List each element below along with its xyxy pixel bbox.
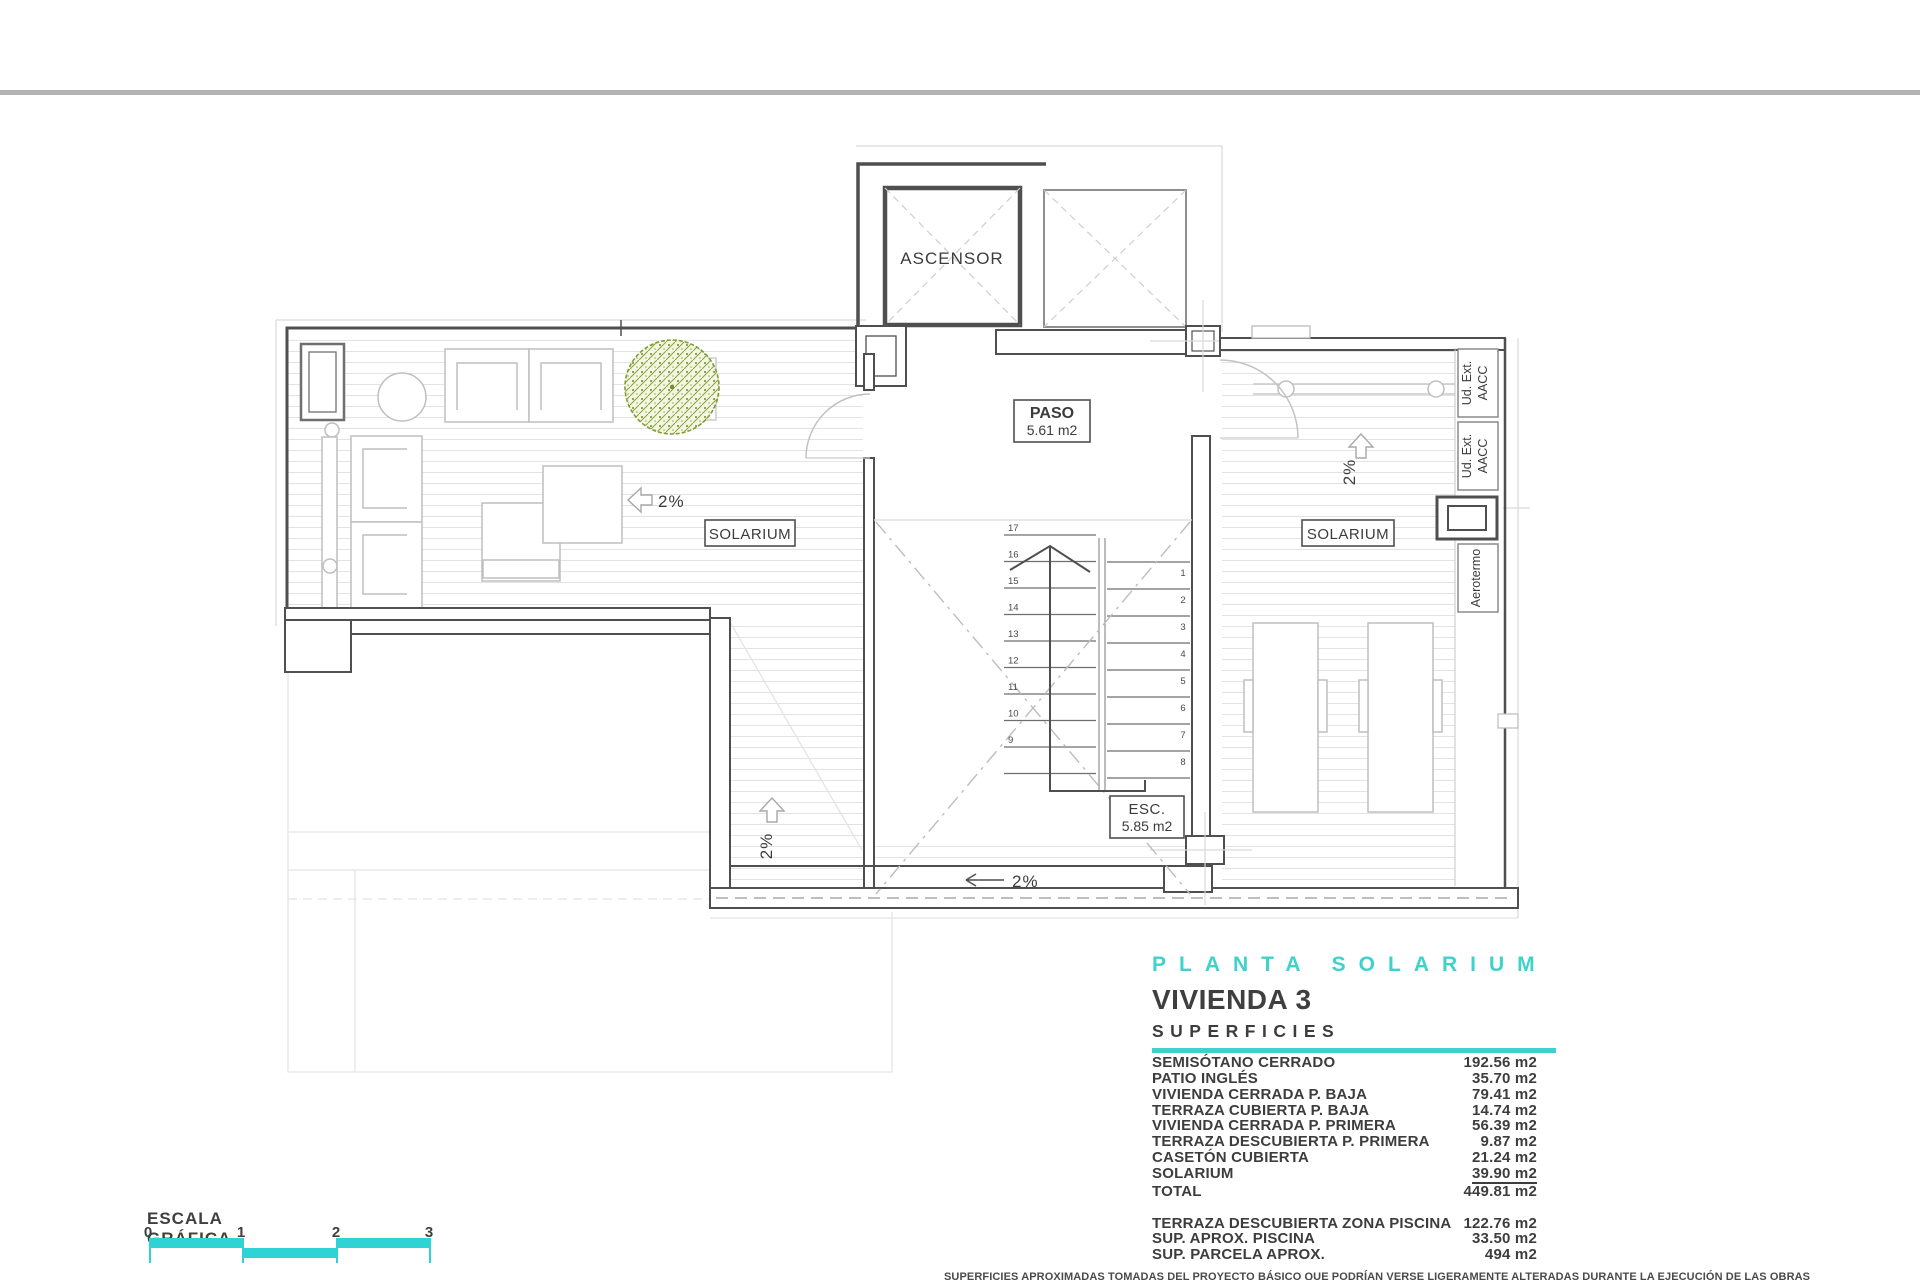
- surface-value: 21.24 m2: [1472, 1150, 1537, 1166]
- esc-area-label: 5.85 m2: [1122, 818, 1173, 834]
- handrail-post: [1428, 381, 1444, 397]
- scale-segment: [337, 1238, 430, 1248]
- surface-label: TERRAZA CUBIERTA P. BAJA: [1152, 1103, 1369, 1119]
- slope-bottom-label: 2%: [1012, 872, 1039, 891]
- surfaces-table: SEMISÓTANO CERRADO192.56 m2PATIO INGLÉS3…: [1152, 1055, 1537, 1200]
- aacc-unit-label: Ud. Ext.: [1460, 361, 1474, 405]
- slope-arrow-bottom-icon: [966, 874, 1004, 886]
- surface-label: VIVIENDA CERRADA P. PRIMERA: [1152, 1118, 1396, 1134]
- surface-row: TERRAZA DESCUBIERTA ZONA PISCINA122.76 m…: [1152, 1216, 1537, 1232]
- scale-segment: [243, 1248, 337, 1258]
- surface-label: TERRAZA DESCUBIERTA ZONA PISCINA: [1152, 1216, 1451, 1232]
- surface-label: CASETÓN CUBIERTA: [1152, 1150, 1309, 1166]
- svg-text:7: 7: [1180, 730, 1185, 741]
- surface-value: 35.70 m2: [1472, 1071, 1537, 1087]
- surface-row: SUP. APROX. PISCINA33.50 m2: [1152, 1231, 1537, 1247]
- surface-row: SOLARIUM39.90 m2: [1152, 1166, 1537, 1184]
- plan-title: PLANTA SOLARIUM: [1152, 953, 1556, 977]
- surface-row: VIVIENDA CERRADA P. PRIMERA56.39 m2: [1152, 1118, 1537, 1134]
- slope-right-label: 2%: [1340, 459, 1359, 486]
- surface-label: SUP. PARCELA APROX.: [1152, 1247, 1325, 1263]
- surface-value: 14.74 m2: [1472, 1103, 1537, 1119]
- aerotermo-unit: [1437, 497, 1497, 539]
- paso-area-label: 5.61 m2: [1027, 422, 1078, 438]
- svg-text:8: 8: [1180, 757, 1185, 768]
- surface-value: 79.41 m2: [1472, 1087, 1537, 1103]
- svg-text:4: 4: [1180, 649, 1185, 660]
- accent-rule: [1152, 1048, 1556, 1053]
- stair-treads-right: [1107, 562, 1190, 778]
- svg-text:12: 12: [1008, 656, 1019, 667]
- svg-text:17: 17: [1008, 523, 1019, 534]
- surface-value: 33.50 m2: [1472, 1231, 1537, 1247]
- surface-label: SEMISÓTANO CERRADO: [1152, 1055, 1335, 1071]
- slope-mid-label: 2%: [757, 833, 776, 860]
- side-rail: [322, 437, 337, 608]
- scale-segment: [150, 1238, 243, 1248]
- slope-left-label: 2%: [658, 492, 685, 511]
- stair-step-numbers-right: 12345678: [1180, 568, 1185, 768]
- title-block: PLANTA SOLARIUM VIVIENDA 3 SUPERFICIES S…: [1152, 953, 1556, 1263]
- surface-label: TOTAL: [1152, 1184, 1202, 1200]
- surface-label: PATIO INGLÉS: [1152, 1071, 1258, 1087]
- surface-value: 56.39 m2: [1472, 1118, 1537, 1134]
- svg-text:5: 5: [1180, 676, 1185, 687]
- surface-row: TOTAL449.81 m2: [1152, 1184, 1537, 1200]
- surface-row: TERRAZA CUBIERTA P. BAJA14.74 m2: [1152, 1103, 1537, 1119]
- svg-text:1: 1: [1180, 568, 1185, 579]
- floor-plan-page: 17161514131211109 12345678 ASCENSOR PASO…: [0, 0, 1920, 1280]
- round-table: [378, 373, 426, 421]
- esc-label: ESC.: [1128, 801, 1165, 818]
- svg-text:15: 15: [1008, 576, 1019, 587]
- svg-text:6: 6: [1180, 703, 1185, 714]
- surface-label: VIVIENDA CERRADA P. BAJA: [1152, 1087, 1367, 1103]
- post-circle: [325, 423, 339, 437]
- svg-text:3: 3: [1180, 622, 1185, 633]
- solarium-left-label: SOLARIUM: [709, 526, 791, 543]
- lounge-cushion: [543, 466, 622, 543]
- svg-text:2: 2: [1180, 595, 1185, 606]
- svg-text:14: 14: [1008, 603, 1019, 614]
- surface-label: SUP. APROX. PISCINA: [1152, 1231, 1315, 1247]
- unit-title: VIVIENDA 3: [1152, 984, 1556, 1016]
- floor-plan-drawing: 17161514131211109 12345678 ASCENSOR PASO…: [0, 0, 1920, 1280]
- low-table: [483, 560, 559, 578]
- surfaces-extra-table: TERRAZA DESCUBIERTA ZONA PISCINA122.76 m…: [1152, 1216, 1537, 1264]
- surface-row: CASETÓN CUBIERTA21.24 m2: [1152, 1150, 1537, 1166]
- surface-value: 122.76 m2: [1463, 1216, 1537, 1232]
- planter-box: [301, 344, 344, 420]
- aerotermo-label: Aerotermo: [1469, 549, 1483, 607]
- disclaimer-text: SUPERFICIES APROXIMADAS TOMADAS DEL PROY…: [944, 1271, 1754, 1280]
- stair-direction-arrow: [1050, 546, 1145, 791]
- surface-value: 449.81 m2: [1463, 1184, 1537, 1200]
- svg-text:AACC: AACC: [1476, 366, 1490, 401]
- aacc-unit-label: Ud. Ext.: [1460, 434, 1474, 478]
- svg-text:13: 13: [1008, 629, 1019, 640]
- surface-label: TERRAZA DESCUBIERTA P. PRIMERA: [1152, 1134, 1430, 1150]
- surface-value: 39.90 m2: [1472, 1166, 1537, 1184]
- paso-label: PASO: [1030, 405, 1074, 422]
- stair-step-numbers-left: 17161514131211109: [1008, 523, 1019, 746]
- surface-row: TERRAZA DESCUBIERTA P. PRIMERA9.87 m2: [1152, 1134, 1537, 1150]
- surface-value: 494 m2: [1485, 1247, 1537, 1263]
- ascensor-label: ASCENSOR: [900, 249, 1003, 268]
- surface-row: VIVIENDA CERRADA P. BAJA79.41 m2: [1152, 1087, 1537, 1103]
- svg-text:9: 9: [1008, 735, 1013, 746]
- svg-text:16: 16: [1008, 550, 1019, 561]
- sunbed: [1368, 623, 1433, 812]
- surface-value: 9.87 m2: [1481, 1134, 1537, 1150]
- surface-value: 192.56 m2: [1463, 1055, 1537, 1071]
- surface-row: SUP. PARCELA APROX.494 m2: [1152, 1247, 1537, 1263]
- svg-text:11: 11: [1008, 682, 1018, 693]
- surface-label: SOLARIUM: [1152, 1166, 1234, 1184]
- sunbed: [1253, 623, 1318, 812]
- solarium-right-label: SOLARIUM: [1307, 526, 1389, 543]
- surface-row: SEMISÓTANO CERRADO192.56 m2: [1152, 1055, 1537, 1071]
- svg-text:10: 10: [1008, 709, 1019, 720]
- svg-text:AACC: AACC: [1476, 439, 1490, 474]
- surfaces-section-title: SUPERFICIES: [1152, 1021, 1556, 1042]
- surface-row: PATIO INGLÉS35.70 m2: [1152, 1071, 1537, 1087]
